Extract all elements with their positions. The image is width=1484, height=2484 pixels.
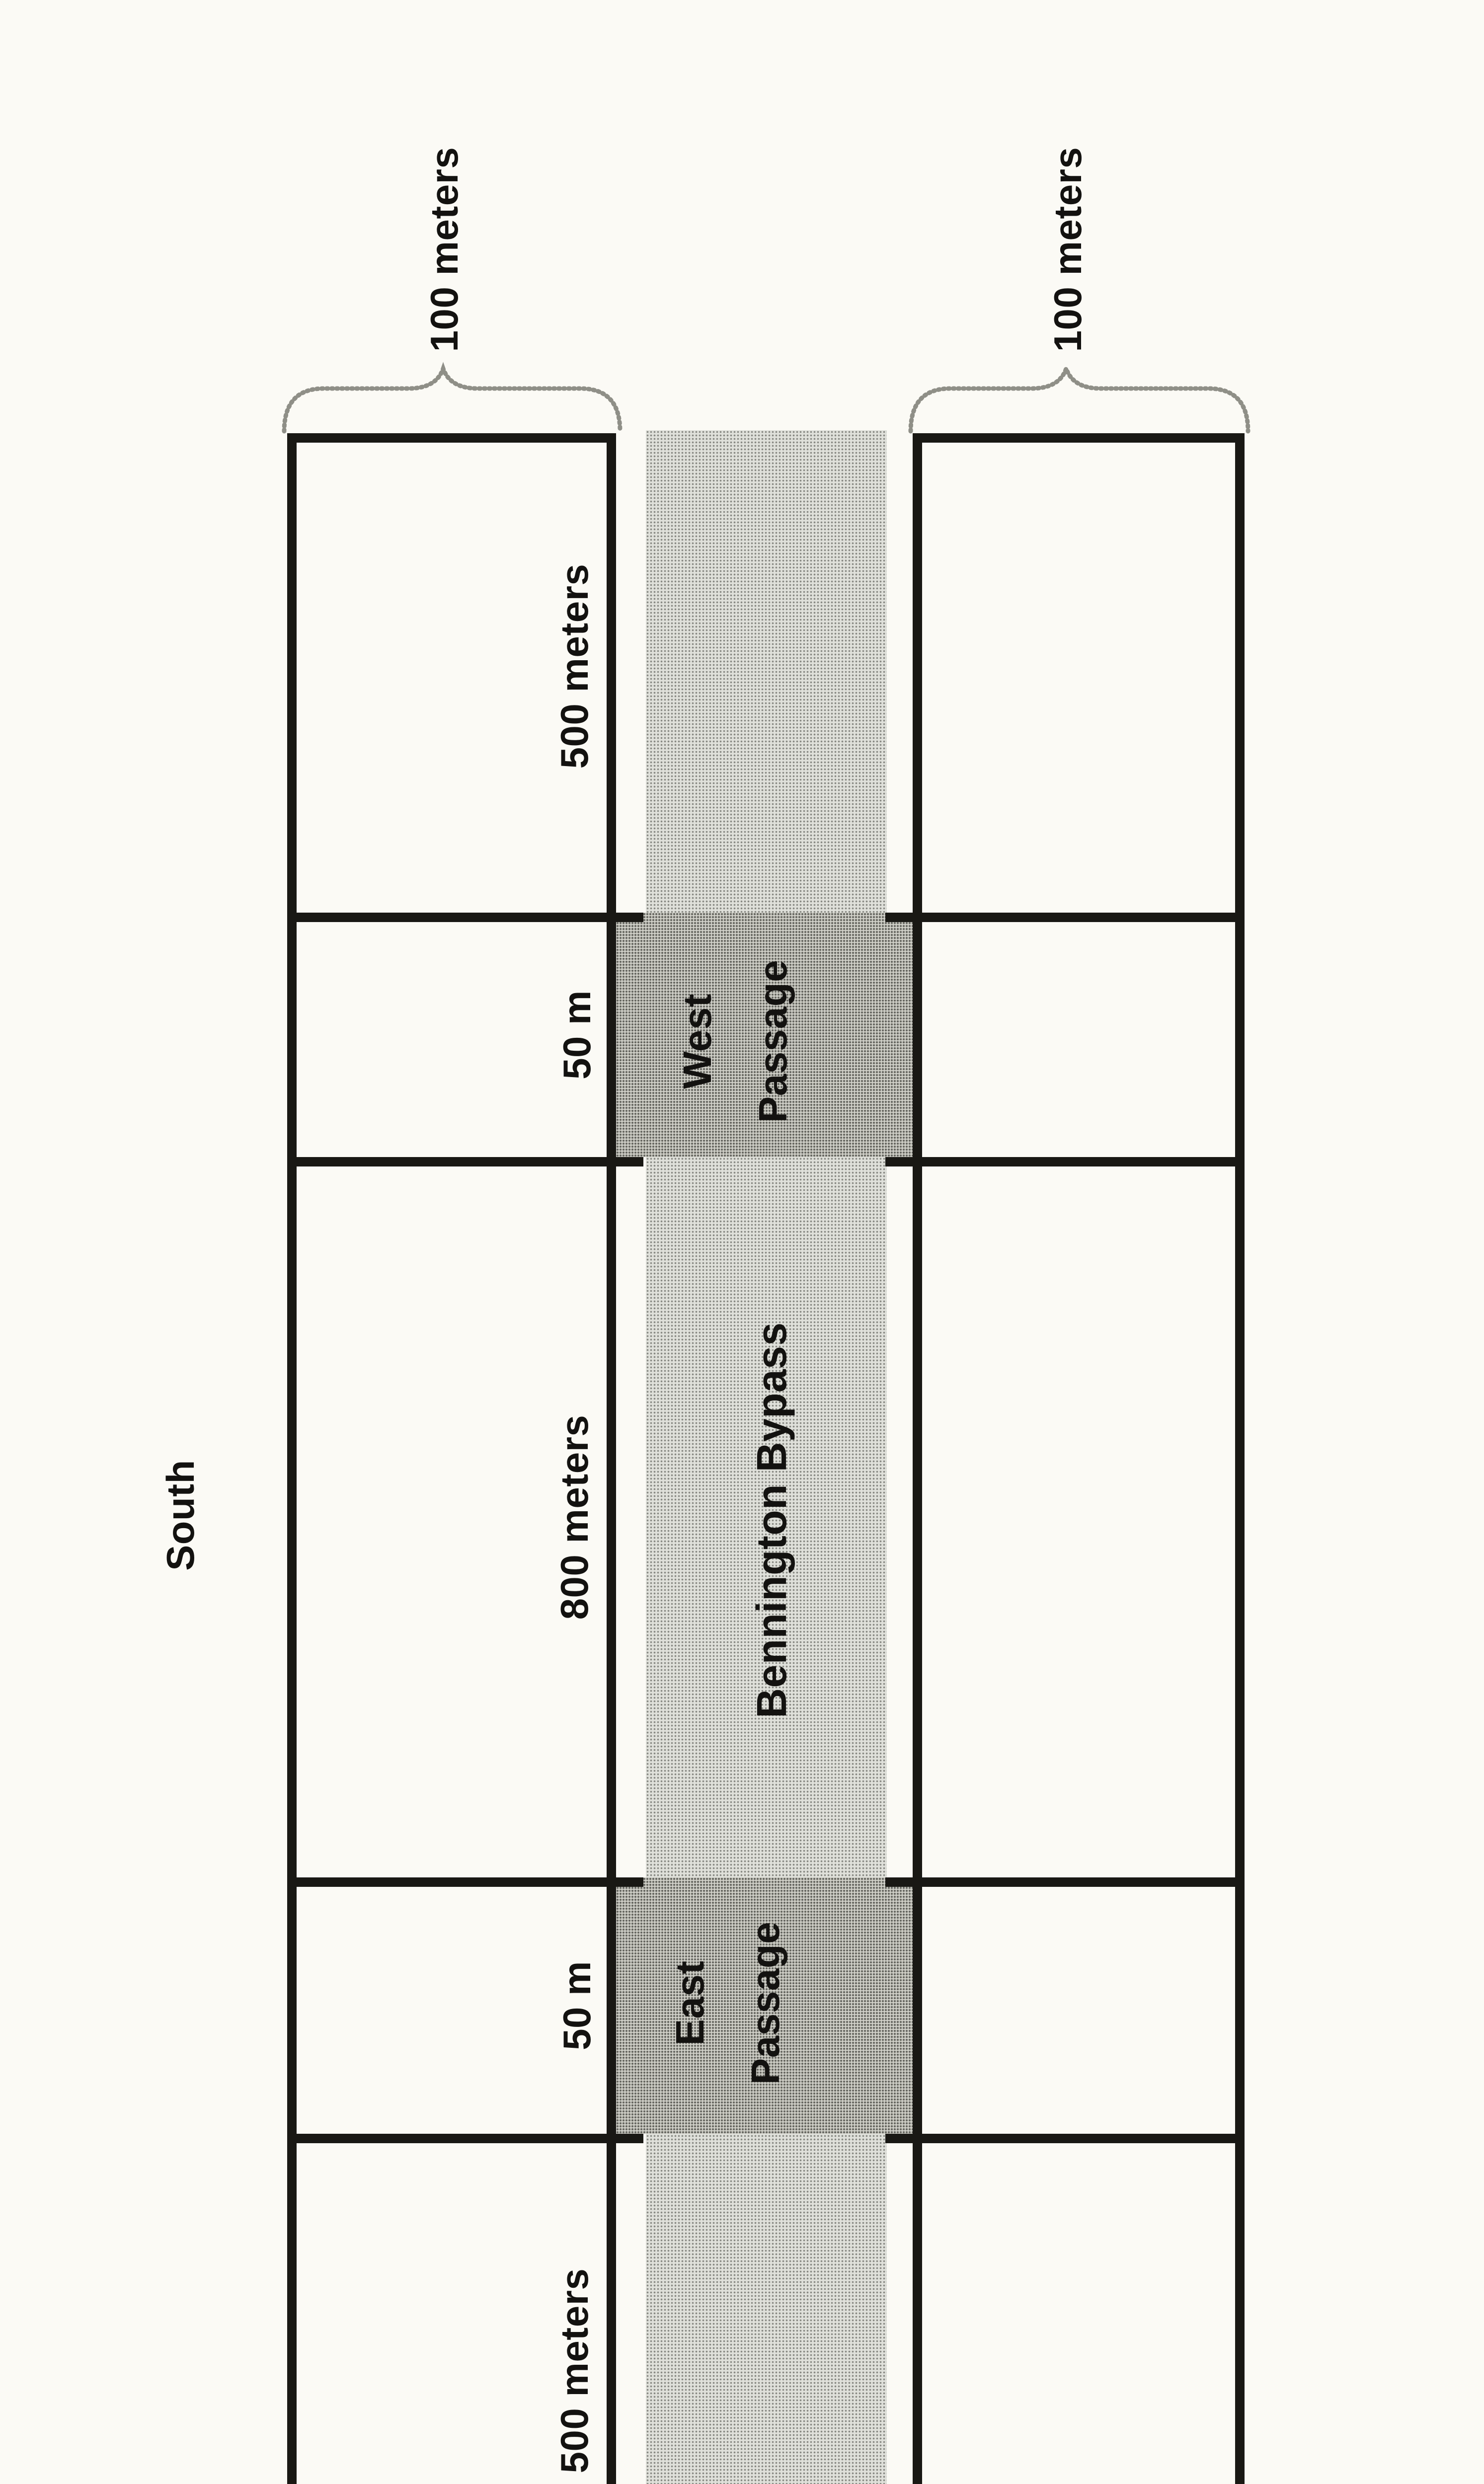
right-column-width-scale-label: 100 meters (1048, 147, 1089, 352)
west-passage-label-line2: Passage (735, 960, 811, 1123)
bennington-bypass-label: Bennington Bypass (750, 1322, 793, 1718)
scale-brace-left (284, 369, 620, 431)
south-direction-label: South (160, 1460, 201, 1570)
left-column-width-scale-label: 100 meters (424, 147, 465, 352)
east-passage-label-line1: East (652, 1922, 728, 2085)
segment-length-label-50m-east: 50 m (557, 1961, 598, 2050)
east-passage-label-line2: Passage (728, 1922, 803, 2085)
segment-length-label-500m-bottom: 500 meters (554, 2268, 595, 2474)
east-passage-label: East Passage (652, 1922, 803, 2085)
scanned-diagram-page: South 100 meters 100 meters 500 meters 5… (0, 0, 1484, 2484)
segment-length-label-800m: 800 meters (554, 1415, 595, 1620)
scale-braces-layer (0, 0, 1484, 2484)
segment-length-label-50m-west: 50 m (557, 990, 598, 1080)
west-passage-label-line1: West (660, 960, 735, 1123)
segment-length-label-500m-top: 500 meters (554, 564, 595, 769)
west-passage-label: West Passage (660, 960, 811, 1123)
scale-brace-right (911, 369, 1248, 431)
